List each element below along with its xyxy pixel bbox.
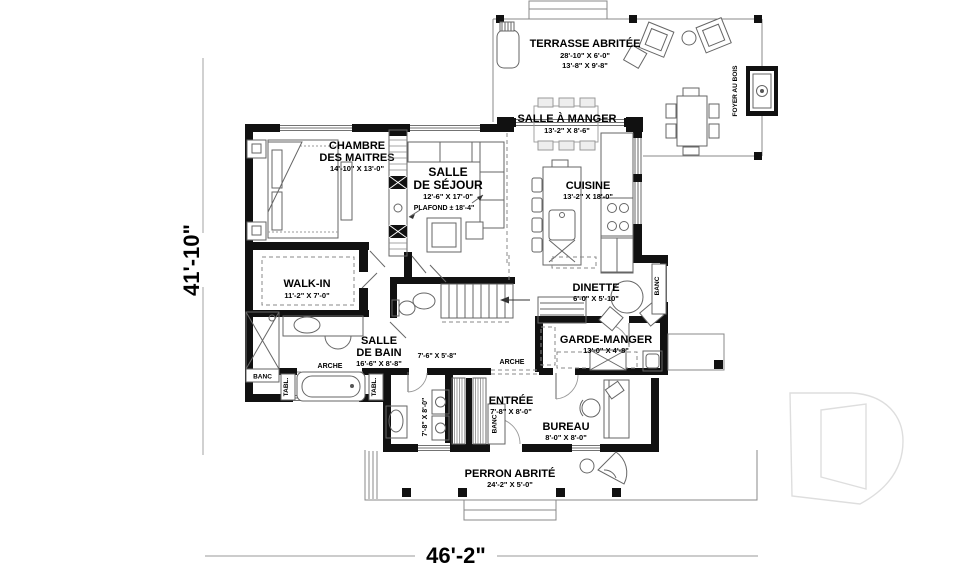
dim-cuisine: 13'-2" X 18'-0": [563, 192, 613, 201]
dim-terrasse-2: 13'-8" X 9'-8": [562, 61, 608, 70]
note-plafond: PLAFOND ± 18'-4": [414, 205, 475, 212]
label-sejour-1: SALLE: [428, 165, 467, 179]
armchair-and-table: [427, 218, 483, 252]
label-arche-entree: ARCHE: [500, 359, 525, 366]
dim-salle-de-bain: 16'-6" X 8'-8": [356, 359, 402, 368]
dim-dinette: 6'-0" X 5'-10": [573, 294, 619, 303]
dim-walkin: 11'-2" X 7'-0": [284, 291, 330, 300]
label-salle-a-manger: SALLE À MANGER: [518, 112, 617, 125]
dim-wc: 7'-6" X 5'-8": [418, 353, 457, 360]
label-banc-douche: BANC: [253, 374, 272, 381]
label-banc-dinette: BANC: [654, 276, 661, 295]
label-banc-entree: BANC: [492, 414, 499, 433]
side-stoop: [668, 334, 724, 370]
dim-chambre: 14'-10" X 13'-0": [330, 164, 384, 173]
bbq-grill-icon: [497, 22, 519, 68]
dim-salle-a-manger: 13'-2" X 8'-6": [544, 126, 590, 135]
dim-garde-manger: 13'-0" X 4'-8": [583, 346, 629, 355]
dim-perron: 24'-2" X 5'-0": [487, 480, 533, 489]
label-walkin: WALK-IN: [283, 278, 330, 290]
label-chambre-1: CHAMBRE: [329, 140, 385, 152]
label-foyer-au-bois: FOYER AU BOIS: [732, 65, 739, 117]
label-chambre-2: DES MAITRES: [319, 152, 394, 164]
dim-entree: 7'-8" X 8'-0": [490, 407, 532, 416]
bathtub: [297, 372, 365, 401]
terrace-steps: [529, 1, 607, 19]
floor-plan-svg: 41'-10" 46'-2": [0, 0, 960, 569]
porch-outline: [365, 450, 757, 520]
staircase: [441, 284, 530, 318]
label-dinette: DINETTE: [572, 282, 619, 294]
terrace-dining-table: [666, 88, 719, 155]
kitchen-counter-range: [601, 133, 633, 273]
label-sejour-2: DE SÉJOUR: [413, 177, 483, 192]
label-terrasse: TERRASSE ABRITÉE: [530, 37, 641, 50]
label-tablette-gauche: TABL.: [283, 377, 290, 396]
fireplace-icon: [746, 66, 778, 116]
dim-buanderie: 7'-8" X 8'-0": [422, 398, 429, 437]
label-salle-de-bain-2: DE BAIN: [356, 347, 401, 359]
dim-bureau: 8'-0" X 8'-0": [545, 433, 587, 442]
porch-chair-table: [580, 452, 627, 484]
overall-width-label: 46'-2": [426, 543, 486, 568]
bath-vanity: [283, 316, 363, 349]
dim-sejour: 12'-6" X 17'-0": [423, 192, 473, 201]
kitchen-island: [532, 160, 581, 265]
wc-fixtures: [392, 293, 435, 316]
label-salle-de-bain-1: SALLE: [361, 335, 397, 347]
label-perron: PERRON ABRITÉ: [465, 467, 556, 480]
floor-plan-canvas: 41'-10" 46'-2": [0, 0, 960, 569]
dim-terrasse-1: 28'-10" X 6'-0": [560, 51, 610, 60]
label-arche-bain: ARCHE: [318, 363, 343, 370]
brand-watermark-icon: [790, 393, 903, 504]
label-entree: ENTRÉE: [489, 394, 534, 407]
label-garde-manger: GARDE-MANGER: [560, 334, 652, 346]
label-cuisine: CUISINE: [566, 180, 611, 192]
media-wall-divider: [389, 128, 407, 256]
label-tablette-droite: TABL.: [371, 377, 378, 396]
label-bureau: BUREAU: [542, 421, 589, 433]
overall-depth-label: 41'-10": [179, 224, 204, 296]
